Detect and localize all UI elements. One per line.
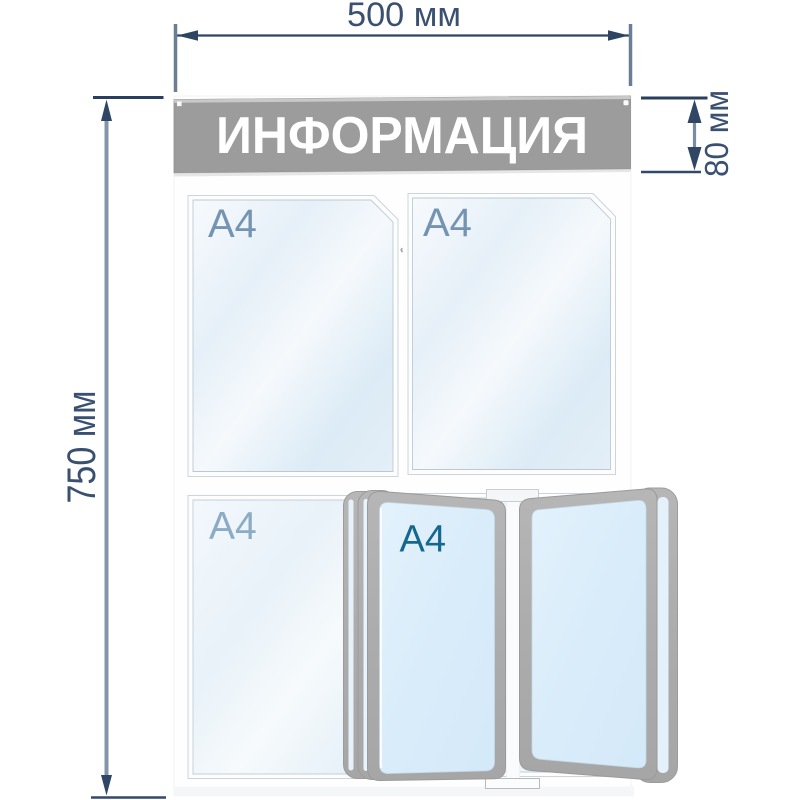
svg-text:ИНФОРМАЦИЯ: ИНФОРМАЦИЯ (216, 106, 588, 164)
svg-text:A4: A4 (209, 505, 257, 548)
svg-text:A4: A4 (423, 201, 472, 245)
svg-text:750 мм: 750 мм (60, 391, 104, 504)
svg-text:A4: A4 (208, 202, 257, 246)
svg-text:500 мм: 500 мм (347, 0, 461, 34)
svg-text:A4: A4 (400, 519, 446, 561)
svg-text:80 мм: 80 мм (698, 90, 735, 177)
